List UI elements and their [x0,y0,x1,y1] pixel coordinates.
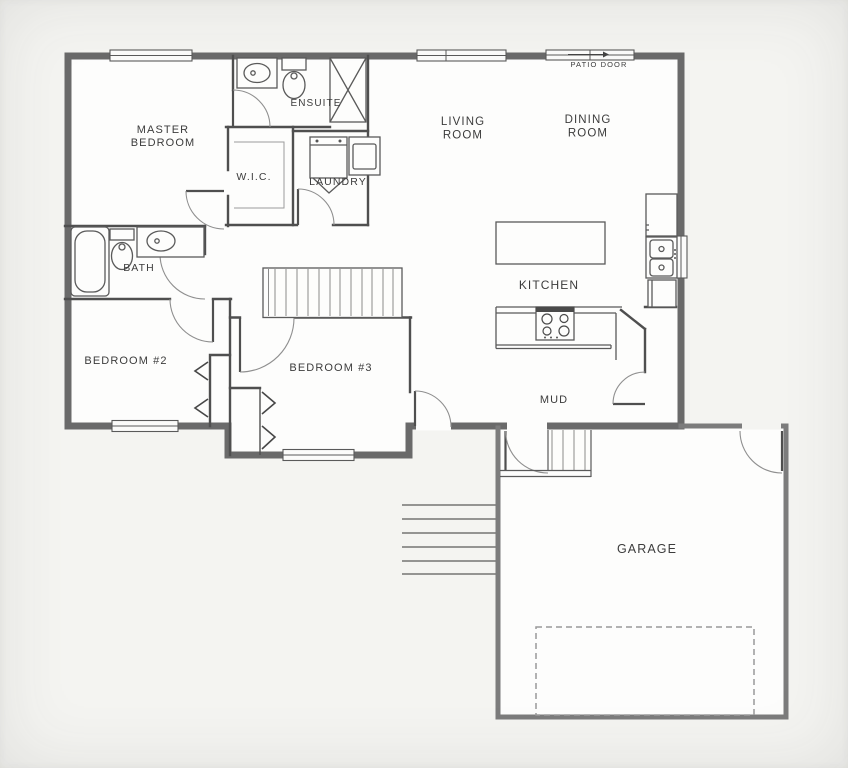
room-label-dining-room: DININGROOM [565,114,612,140]
room-label-living-room: LIVINGROOM [441,116,485,142]
kitchen-island [496,222,605,264]
garage-service-opening [742,423,781,430]
master-bedroom-window [110,50,192,61]
room-label-bedroom-2: BEDROOM #2 [84,355,167,367]
room-label-bath: BATH [123,262,155,274]
stairs-main [263,268,402,318]
shower-icon [330,58,366,122]
stairs-exterior [402,505,496,574]
room-label-kitchen: KITCHEN [519,278,579,292]
room-label-laundry: LAUNDRY [309,176,367,188]
dryer-icon [349,137,380,175]
room-label-garage: GARAGE [617,542,677,556]
room-label-patio-door: PATIO DOOR [571,60,628,69]
base-cabinet-icon [648,280,676,307]
bedroom-2-window [112,421,178,432]
landing-door-opening [507,422,547,431]
garage-floor [498,426,786,717]
range-stove-icon [536,307,574,340]
bath-vanity-sink-icon [137,227,204,257]
bathtub-icon [71,227,109,296]
refrigerator-icon [646,194,677,236]
room-label-master-bedroom: MASTERBEDROOM [131,124,196,149]
side-entry-opening [416,422,451,431]
living-room-window [417,50,506,61]
double-sink-icon [646,237,677,278]
bedroom-3-window [283,450,354,461]
floor-plan-drawing: MASTERBEDROOMENSUITEW.I.C.LAUNDRYLIVINGR… [0,0,848,768]
room-label-wic: W.I.C. [236,171,271,183]
ensuite-vanity-sink-icon [237,58,277,88]
floor-plan-canvas: MASTERBEDROOMENSUITEW.I.C.LAUNDRYLIVINGR… [0,0,848,768]
room-label-bedroom-3: BEDROOM #3 [289,362,372,374]
room-label-mud: MUD [540,394,568,406]
ensuite-toilet-icon [282,58,306,99]
room-label-ensuite: ENSUITE [290,98,341,109]
patio-door [546,50,634,60]
